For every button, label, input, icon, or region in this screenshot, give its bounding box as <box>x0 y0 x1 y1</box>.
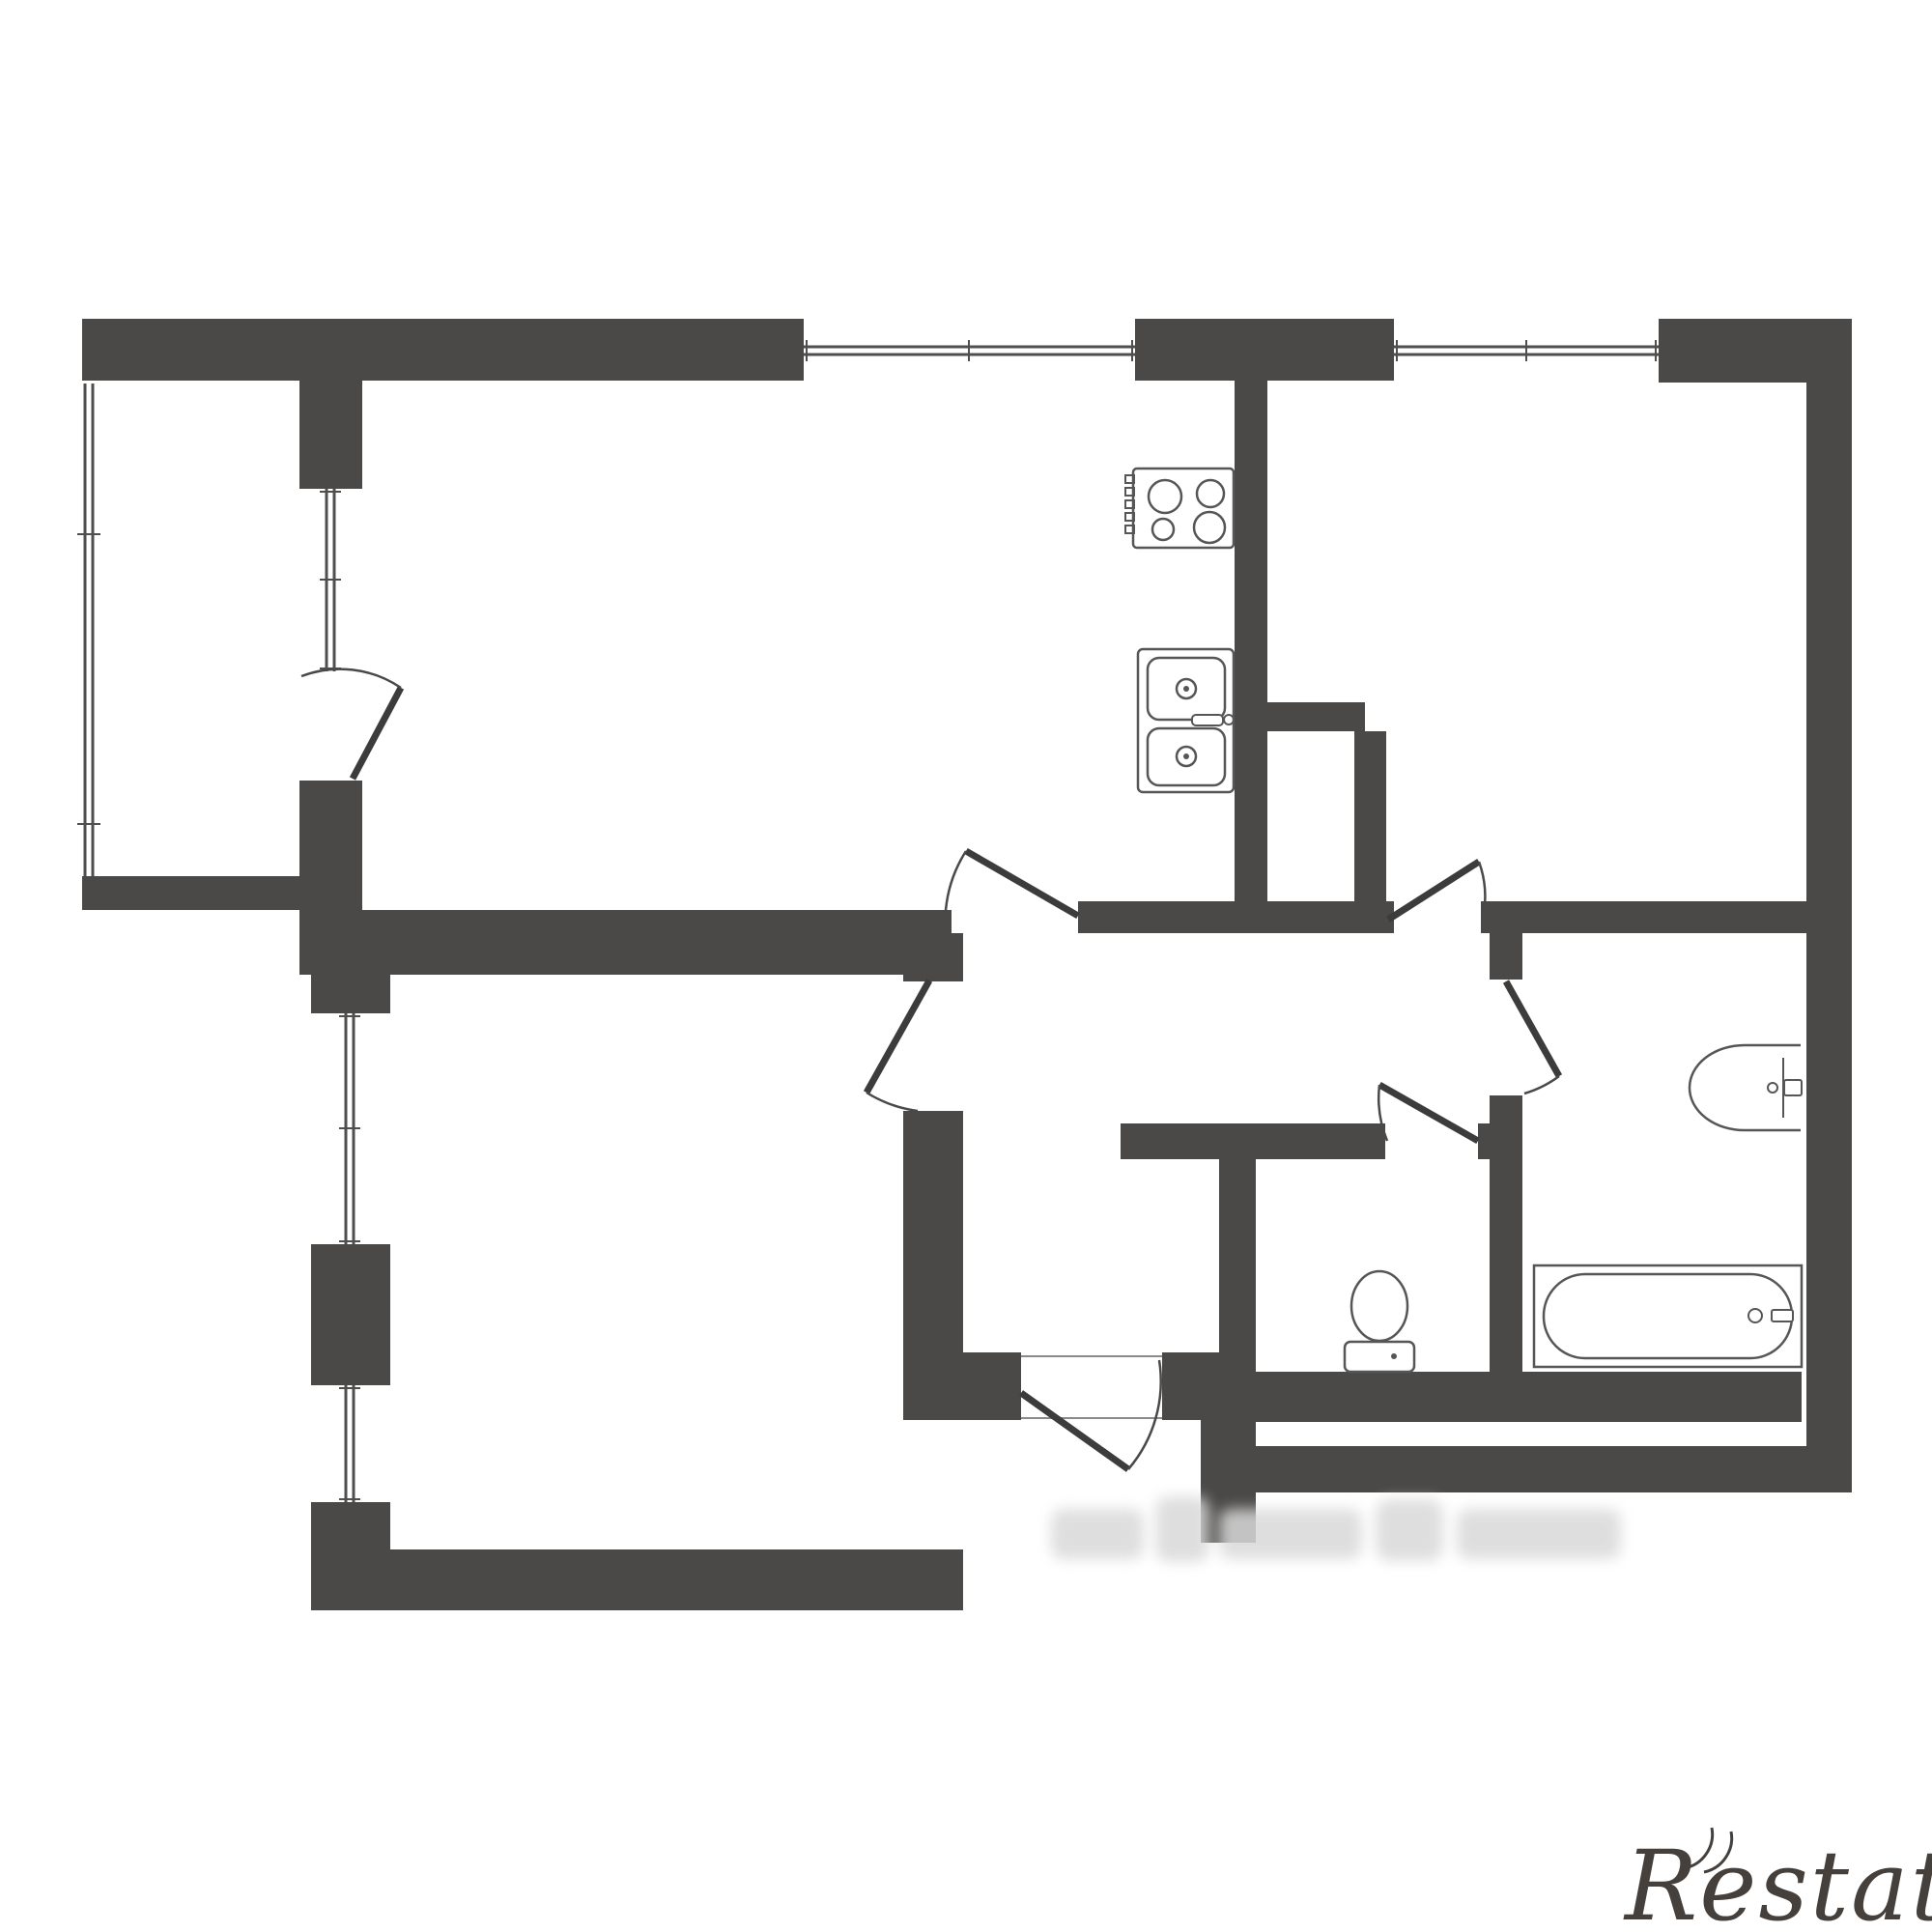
wall-kitchen-east <box>1235 381 1267 933</box>
bathroom-sink-tap <box>1784 1080 1802 1095</box>
wall-bath-separator <box>1490 1095 1522 1372</box>
wall-bedroom-south <box>311 1549 963 1610</box>
toilet-bowl <box>1351 1271 1407 1341</box>
kitchen-sink-drain-dot <box>1183 686 1189 692</box>
door-leaf-entrance <box>1021 1393 1128 1469</box>
door-leaf-room <box>1388 862 1479 920</box>
wall-bedroom-west-a <box>311 975 390 1013</box>
wall-bedroom-east-stub <box>903 933 963 981</box>
floorplan-page: Restate <box>0 0 1932 1932</box>
restate-watermark: Restate <box>1625 1833 1932 1932</box>
faint-watermark-blob <box>1051 1509 1144 1559</box>
wall-bedroom-north <box>299 910 952 975</box>
wall-hall-north <box>1078 901 1394 933</box>
wall-wet-inner-south <box>1256 1372 1802 1422</box>
faint-watermark-blob <box>1376 1499 1443 1561</box>
wall-right-outer <box>1806 319 1852 1492</box>
wall-balcony-separator-upper <box>299 381 362 489</box>
faint-watermark-blob <box>1457 1509 1621 1559</box>
wall-top-left <box>82 319 804 381</box>
door-arc-entrance <box>1128 1360 1161 1469</box>
door-leaf-balcony <box>353 688 401 779</box>
door-arc-balcony <box>301 669 401 688</box>
wall-bedroom-east <box>903 1111 963 1391</box>
wall-hall-south-left <box>1121 1123 1385 1159</box>
wall-bath-separator-stub <box>1490 933 1522 980</box>
door-leaf-toilet <box>1379 1085 1478 1141</box>
window-recess-bedroom-lower <box>311 1385 390 1502</box>
floorplan-svg <box>0 0 1932 1932</box>
door-arc-bedroom <box>867 1093 918 1111</box>
wall-bedroom-west-c <box>311 1502 390 1550</box>
wall-bedroom-west-b <box>311 1244 390 1385</box>
wall-balcony-separator-lower <box>299 781 362 912</box>
wall-room-south <box>1481 901 1806 933</box>
door-leaf-bathroom <box>1506 981 1559 1076</box>
kitchen-sink-drain-dot <box>1183 753 1189 759</box>
wall-top-mid <box>1135 319 1394 381</box>
stove <box>1133 469 1234 548</box>
toilet-tank <box>1345 1342 1414 1372</box>
wall-entry-jamb-left <box>950 1352 1021 1420</box>
wall-duct-top <box>1267 702 1365 731</box>
wall-outer-south-right <box>1201 1446 1852 1492</box>
door-arc-bathroom <box>1524 1076 1559 1094</box>
door-leaf-kitchen <box>966 851 1078 916</box>
toilet-flush-dot <box>1391 1353 1397 1359</box>
door-leaf-bedroom <box>867 980 929 1093</box>
wall-toilet-west <box>1219 1123 1256 1446</box>
wall-balcony-bottom <box>82 876 299 910</box>
faint-watermark-blob <box>1219 1509 1362 1559</box>
kitchen-sink-faucet <box>1192 715 1223 725</box>
bathtub-tap <box>1772 1310 1793 1321</box>
faint-watermark-blob <box>1155 1496 1209 1562</box>
